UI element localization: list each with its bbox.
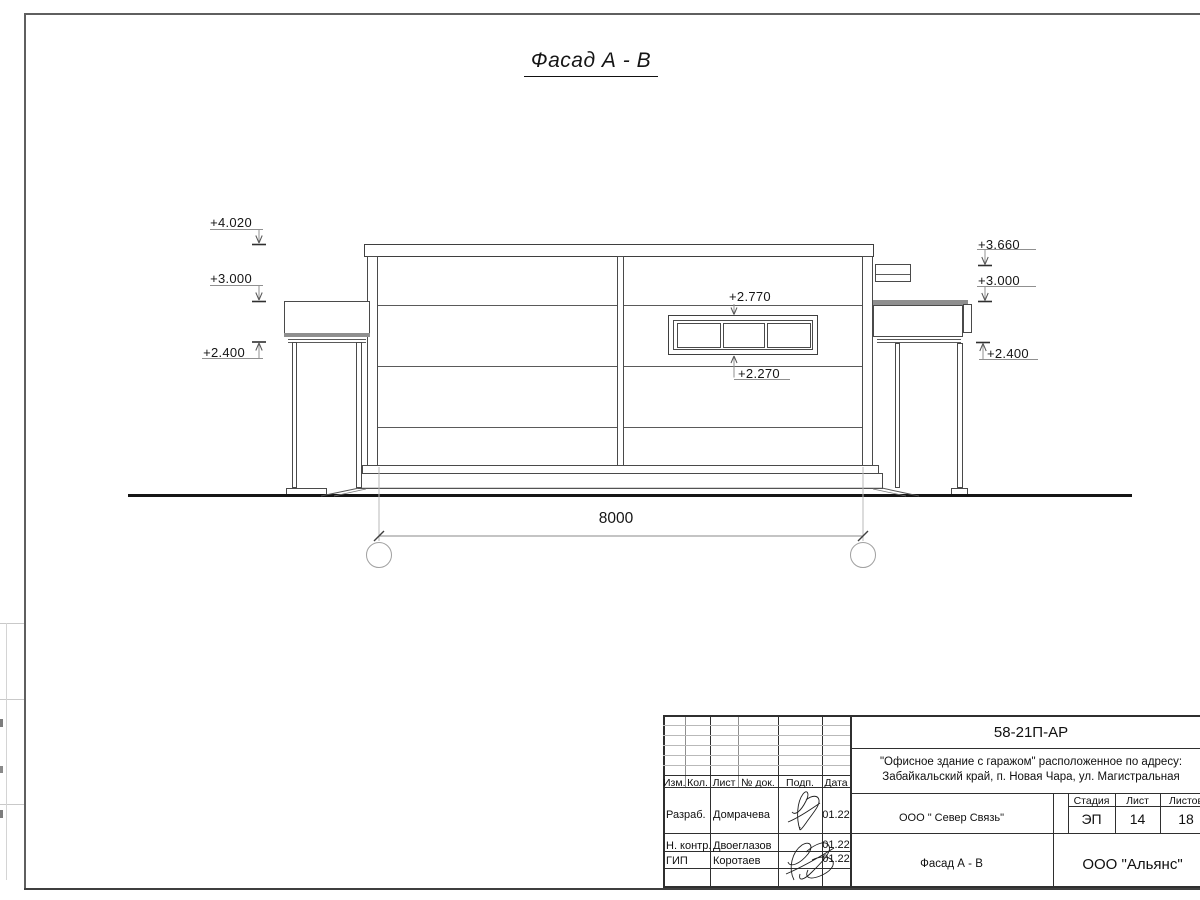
tb-date-gip: 01.22 <box>822 853 850 865</box>
signature-developer <box>788 792 820 830</box>
left-edge-text-fragment <box>0 766 3 773</box>
window-pane <box>767 323 811 348</box>
left-canopy-post <box>356 342 362 488</box>
elevation-label: +4.020 <box>200 215 252 230</box>
roof-projection-box <box>875 264 911 282</box>
tb-sheets-header: Листов <box>1160 795 1200 807</box>
tb-project-address-line1: "Офисное здание с гаражом" расположенное… <box>850 756 1200 768</box>
siding-line <box>378 366 617 367</box>
tb-col-list: Лист <box>710 777 738 789</box>
tb-sheet-header: Лист <box>1115 795 1160 807</box>
title-block-revision-line <box>663 745 850 746</box>
left-canopy-fascia <box>284 301 370 334</box>
page-title: Фасад А - В <box>524 49 658 77</box>
title-block-revision-line <box>663 735 850 736</box>
left-canopy-gray-band <box>284 333 370 337</box>
right-canopy-side-tab <box>963 304 972 333</box>
tb-col-izm: Изм. <box>663 777 685 789</box>
title-block-border <box>663 715 1200 717</box>
title-block-line <box>663 833 1200 834</box>
siding-line <box>378 305 617 306</box>
title-block-line <box>710 715 711 886</box>
title-block-revision-line <box>663 755 850 756</box>
tb-date-ncontrol: 01.22 <box>822 839 850 851</box>
title-block-border <box>663 715 665 886</box>
wall-middle-trim <box>617 256 624 466</box>
ground-line <box>128 494 1132 497</box>
tb-sheet-title: Фасад А - В <box>850 858 1053 870</box>
tb-date-developer: 01.22 <box>822 809 850 821</box>
tb-project-address-line2: Забайкальский край, п. Новая Чара, ул. М… <box>850 771 1200 783</box>
elevation-label: +3.660 <box>978 237 1020 252</box>
left-edge-table-line <box>0 699 24 700</box>
window-pane <box>723 323 765 348</box>
tb-company: ООО "Альянс" <box>1053 856 1200 873</box>
frame-bottom-border <box>24 888 1200 890</box>
tb-role-developer: Разраб. <box>666 809 706 821</box>
tb-client-org: ООО " Север Связь" <box>850 812 1053 824</box>
left-edge-table-line <box>0 804 24 805</box>
axis-letter-b: В <box>850 547 876 563</box>
wall-corner-trim-left <box>367 256 378 466</box>
drawing-sheet: Фасад А - В +4.020 +3.000 +2.400 +3.660 … <box>0 0 1200 900</box>
tb-col-data: Дата <box>822 777 850 789</box>
title-block-revision-line <box>663 765 850 766</box>
axis-letter-a: А <box>366 547 392 563</box>
title-block-border <box>663 886 1200 888</box>
left-edge-text-fragment <box>0 810 3 818</box>
right-canopy-post <box>895 343 900 488</box>
tb-document-number: 58-21П-АР <box>850 724 1200 741</box>
foundation-band <box>358 473 883 489</box>
right-canopy-post <box>957 343 963 488</box>
tb-sheet-value: 14 <box>1115 811 1160 827</box>
elevation-label-window-top: +2.770 <box>724 289 776 304</box>
wall-corner-trim-right <box>862 256 873 466</box>
tb-col-podp: Подп. <box>778 777 822 789</box>
frame-top-border <box>24 13 1200 15</box>
right-canopy-fascia <box>873 305 963 337</box>
window-pane <box>677 323 721 348</box>
dimension-tick <box>374 531 868 541</box>
left-edge-table-line <box>0 623 24 624</box>
left-canopy-post <box>292 342 297 488</box>
elevation-label: +3.000 <box>978 273 1020 288</box>
elevation-label: +2.400 <box>987 346 1029 361</box>
tb-name-ncontrol: Двоеглазов <box>713 840 771 852</box>
title-block-line <box>850 748 1200 749</box>
tb-stage-value: ЭП <box>1068 811 1115 827</box>
tb-name-gip: Коротаев <box>713 855 761 867</box>
tb-stage-header: Стадия <box>1068 795 1115 807</box>
tb-role-ncontrol: Н. контр. <box>666 840 711 852</box>
siding-line <box>624 305 862 306</box>
siding-line <box>624 427 862 428</box>
right-canopy-soffit-line <box>877 342 961 343</box>
tb-name-developer: Домрачева <box>713 809 770 821</box>
dimension-text: 8000 <box>590 510 642 528</box>
left-canopy-soffit-line <box>288 342 366 343</box>
title-block-line <box>663 775 850 776</box>
tb-role-gip: ГИП <box>666 855 688 867</box>
title-block-line <box>663 868 850 869</box>
tb-col-kol: Кол. <box>685 777 710 789</box>
tb-col-ndok: № док. <box>738 777 778 789</box>
frame-left-border <box>24 13 26 890</box>
right-canopy-soffit-line <box>877 339 961 340</box>
left-edge-text-fragment <box>0 719 3 727</box>
siding-line <box>378 427 617 428</box>
title-block-revision-line <box>663 725 850 726</box>
title-block-line <box>850 793 1200 794</box>
left-canopy-soffit-line <box>288 339 366 340</box>
elevation-label: +3.000 <box>200 271 252 286</box>
elevation-label-window-bottom: +2.270 <box>733 366 785 381</box>
title-block-line <box>778 715 779 886</box>
left-edge-table-line <box>6 623 7 880</box>
tb-sheets-value: 18 <box>1160 811 1200 827</box>
elevation-label: +2.400 <box>193 345 245 360</box>
roof-projection-midline <box>876 274 910 275</box>
